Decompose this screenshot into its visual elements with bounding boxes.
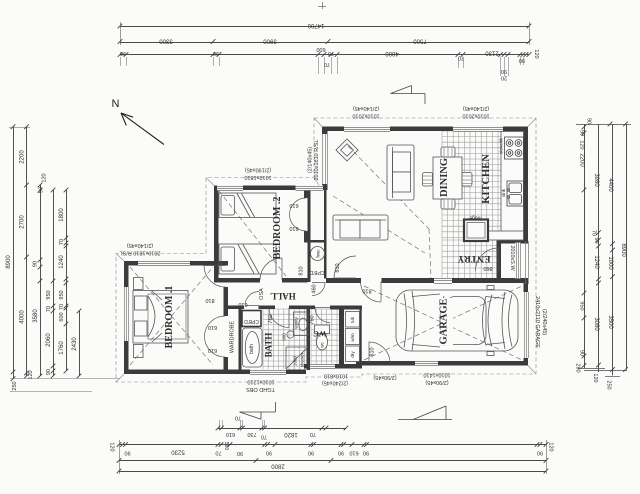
svg-text:610: 610	[238, 301, 247, 307]
svg-text:2130: 2130	[485, 50, 499, 56]
svg-text:950: 950	[579, 301, 585, 310]
svg-text:sink: sink	[501, 188, 506, 197]
svg-text:70: 70	[59, 304, 65, 310]
svg-text:860: 860	[483, 265, 492, 271]
svg-text:3300: 3300	[159, 38, 173, 44]
svg-text:1760: 1760	[59, 341, 65, 355]
svg-text:950: 950	[59, 290, 65, 299]
svg-text:90: 90	[537, 450, 543, 456]
svg-text:1000: 1000	[607, 256, 613, 270]
svg-text:OSA: OSA	[259, 288, 265, 300]
svg-text:TGHD OBS: TGHD OBS	[246, 386, 275, 392]
svg-text:120: 120	[42, 173, 48, 182]
svg-text:2060: 2060	[46, 333, 52, 347]
svg-text:70: 70	[261, 434, 267, 440]
svg-text:1240: 1240	[593, 255, 599, 269]
svg-text:90: 90	[237, 450, 243, 456]
svg-text:610: 610	[208, 347, 217, 353]
svg-text:(2/190x45): (2/190x45)	[245, 167, 271, 173]
svg-text:fridge: fridge	[469, 215, 482, 221]
svg-text:KITCHEN: KITCHEN	[481, 154, 492, 204]
svg-text:810: 810	[335, 263, 341, 272]
svg-text:70: 70	[215, 450, 221, 456]
svg-text:1000: 1000	[293, 355, 298, 366]
svg-text:1010x1810: 1010x1810	[244, 174, 271, 180]
svg-text:90: 90	[579, 130, 585, 136]
svg-text:590: 590	[223, 442, 229, 451]
svg-text:1800: 1800	[59, 208, 65, 222]
svg-text:120: 120	[592, 373, 598, 382]
svg-text:250: 250	[606, 380, 612, 389]
svg-text:(2/140x45): (2/140x45)	[353, 105, 379, 111]
svg-text:2010xS.W: 2010xS.W	[509, 245, 515, 271]
svg-text:810: 810	[205, 297, 214, 303]
svg-text:(2/140x45): (2/140x45)	[308, 147, 314, 173]
svg-text:3900: 3900	[263, 38, 277, 44]
svg-text:810: 810	[299, 266, 305, 275]
svg-text:vanity: vanity	[294, 316, 299, 329]
svg-text:70: 70	[591, 230, 597, 236]
svg-text:90: 90	[501, 68, 507, 74]
svg-text:2410x2110 GARAGE: 2410x2110 GARAGE	[534, 296, 540, 348]
svg-text:120: 120	[579, 140, 585, 149]
svg-text:1010x1210: 1010x1210	[247, 379, 274, 385]
svg-text:1010x2010: 1010x2010	[352, 113, 379, 119]
svg-text:N: N	[112, 98, 120, 110]
svg-text:90: 90	[124, 450, 130, 456]
svg-text:90: 90	[308, 450, 314, 456]
svg-text:DINING: DINING	[439, 158, 450, 197]
svg-text:7500: 7500	[413, 38, 427, 44]
svg-text:610: 610	[289, 202, 298, 208]
svg-text:dry: dry	[350, 351, 355, 358]
svg-text:900: 900	[282, 333, 287, 341]
svg-text:1240: 1240	[59, 255, 65, 269]
svg-text:70: 70	[458, 55, 464, 61]
svg-text:8900: 8900	[6, 255, 12, 269]
svg-text:4000: 4000	[20, 310, 26, 324]
svg-text:WC: WC	[313, 329, 327, 338]
svg-text:90: 90	[120, 50, 126, 56]
svg-text:hwc: hwc	[316, 249, 321, 258]
svg-text:w/m: w/m	[350, 333, 355, 342]
svg-text:610: 610	[208, 324, 217, 330]
svg-text:600: 600	[59, 312, 65, 321]
svg-text:2200: 2200	[579, 153, 585, 167]
svg-text:70: 70	[328, 50, 334, 56]
svg-text:610: 610	[349, 450, 358, 456]
svg-text:4400: 4400	[607, 178, 613, 192]
svg-text:(2/140x45): (2/140x45)	[463, 105, 489, 111]
svg-text:70: 70	[59, 239, 65, 245]
svg-text:760: 760	[268, 314, 274, 323]
svg-text:wc: wc	[320, 342, 325, 348]
svg-text:90: 90	[266, 450, 272, 456]
svg-text:250: 250	[12, 381, 18, 390]
svg-text:90: 90	[39, 187, 45, 193]
svg-text:2010x1810 R/SL: 2010x1810 R/SL	[314, 140, 320, 181]
svg-text:(2/90x45): (2/90x45)	[425, 379, 448, 385]
svg-text:460: 460	[312, 284, 318, 293]
svg-text:WARDROBE: WARDROBE	[230, 321, 236, 354]
svg-text:3980: 3980	[593, 173, 599, 187]
svg-text:CPB'D: CPB'D	[309, 269, 324, 275]
svg-text:1820: 1820	[284, 431, 298, 437]
svg-text:HALL: HALL	[270, 291, 296, 301]
svg-text:760: 760	[310, 315, 316, 324]
svg-text:810: 810	[370, 347, 376, 356]
svg-text:(2/140x45): (2/140x45)	[127, 242, 153, 248]
svg-text:CPB'D: CPB'D	[244, 318, 259, 324]
svg-text:BEDROOM .2: BEDROOM .2	[272, 197, 283, 260]
svg-text:610: 610	[226, 431, 235, 437]
svg-text:2700: 2700	[20, 215, 26, 229]
svg-text:8900: 8900	[620, 243, 626, 257]
svg-text:3500: 3500	[607, 315, 613, 329]
svg-text:(2/240x45): (2/240x45)	[541, 309, 547, 335]
svg-text:120: 120	[533, 49, 539, 58]
svg-text:90: 90	[593, 237, 599, 243]
svg-text:90: 90	[213, 50, 219, 56]
svg-text:120: 120	[109, 442, 115, 451]
svg-text:810: 810	[362, 288, 371, 294]
svg-text:5230: 5230	[171, 449, 185, 455]
svg-text:4880: 4880	[385, 50, 399, 56]
svg-text:2800: 2800	[271, 463, 285, 469]
svg-text:90: 90	[363, 450, 369, 456]
svg-text:280: 280	[575, 363, 581, 372]
svg-text:70: 70	[324, 61, 330, 67]
svg-text:70: 70	[46, 306, 52, 312]
svg-text:BEDROOM .1: BEDROOM .1	[164, 286, 175, 349]
svg-text:ENTRY: ENTRY	[457, 253, 490, 263]
svg-text:tub: tub	[350, 316, 355, 323]
svg-text:1010x810: 1010x810	[324, 373, 348, 379]
svg-text:BATH: BATH	[264, 333, 274, 358]
svg-text:2430: 2430	[72, 337, 78, 351]
svg-text:3080: 3080	[593, 317, 599, 331]
svg-text:14700: 14700	[307, 22, 324, 28]
svg-text:90: 90	[579, 350, 585, 356]
svg-text:2010x1810 R/SL: 2010x1810 R/SL	[120, 250, 161, 256]
svg-text:950: 950	[46, 290, 52, 299]
svg-text:70: 70	[310, 431, 316, 437]
svg-text:90: 90	[33, 261, 39, 267]
svg-text:1010x1410: 1010x1410	[423, 372, 450, 378]
svg-text:1010x2010: 1010x2010	[462, 113, 489, 119]
svg-text:GARAGE: GARAGE	[439, 298, 450, 344]
svg-text:730: 730	[247, 431, 256, 437]
svg-text:3580: 3580	[33, 309, 39, 323]
svg-text:stove/rb: stove/rb	[499, 138, 504, 155]
svg-text:90: 90	[586, 118, 592, 124]
svg-text:bath: bath	[249, 344, 255, 354]
svg-text:120: 120	[548, 442, 554, 451]
svg-text:90: 90	[46, 369, 52, 375]
svg-text:2200: 2200	[20, 150, 26, 164]
svg-text:20: 20	[501, 75, 507, 81]
svg-text:(2/90x45): (2/90x45)	[373, 374, 396, 380]
svg-text:610: 610	[289, 225, 298, 231]
svg-text:90: 90	[338, 450, 344, 456]
svg-text:90: 90	[519, 57, 525, 63]
svg-text:70: 70	[235, 415, 241, 421]
svg-text:600: 600	[316, 46, 325, 52]
svg-text:(2/240x45): (2/240x45)	[322, 380, 348, 386]
svg-text:shower: shower	[300, 352, 305, 367]
